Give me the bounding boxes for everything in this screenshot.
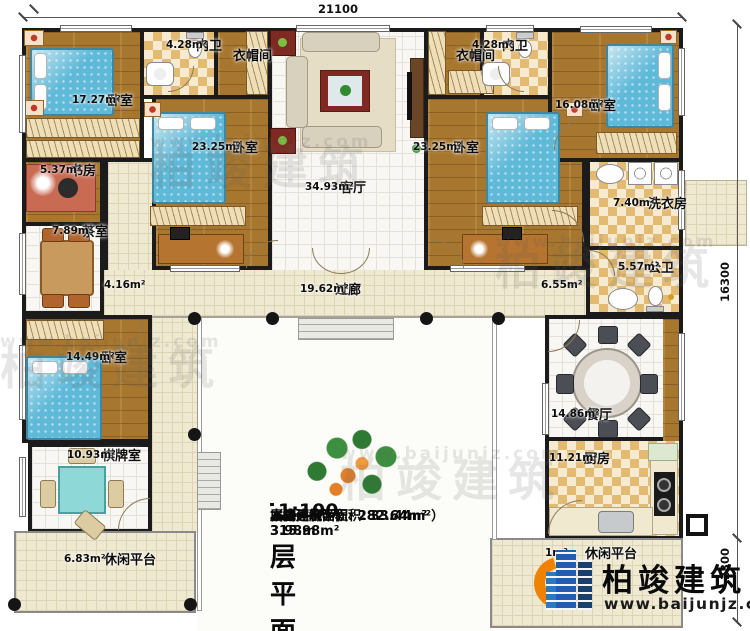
window — [170, 265, 240, 272]
courtyard-rail — [492, 318, 497, 540]
toilet — [648, 286, 663, 306]
tv-cabinet — [410, 58, 424, 138]
sink — [608, 288, 638, 310]
company-logo: 柏竣建筑 www.baijunjz.com — [530, 545, 750, 629]
pillow — [524, 117, 550, 130]
sink — [596, 164, 624, 184]
plant-icon — [278, 136, 287, 145]
logo-company-name: 柏竣建筑 — [602, 555, 746, 600]
wardrobe-hatch — [26, 320, 104, 340]
wardrobe-hatch — [150, 206, 246, 226]
tv-icon — [407, 72, 412, 120]
nightstand — [660, 30, 677, 44]
pillow — [658, 52, 671, 79]
monitor-icon — [170, 227, 190, 240]
wardrobe-hatch — [26, 140, 140, 158]
column — [8, 598, 21, 611]
toilet — [516, 32, 534, 39]
floor-drain-icon — [668, 294, 674, 300]
column — [492, 312, 505, 325]
column — [420, 312, 433, 325]
washing-machine — [654, 162, 678, 185]
nightstand — [144, 102, 161, 117]
logo-building-icon — [578, 560, 592, 610]
sofa — [286, 56, 308, 128]
toilet — [186, 32, 204, 39]
chair — [42, 294, 64, 308]
steps — [197, 452, 221, 510]
pillow — [34, 53, 47, 79]
chair — [598, 326, 618, 344]
pillar-box — [686, 514, 708, 536]
dimension-height-upper: 16300 — [718, 262, 732, 302]
logo-building-icon — [556, 550, 576, 610]
fridge — [648, 443, 678, 461]
burner-icon — [657, 498, 671, 512]
window — [678, 333, 685, 421]
column — [188, 312, 201, 325]
desk-lamp-icon — [470, 240, 488, 258]
logo-building-icon — [546, 572, 556, 610]
column — [188, 428, 201, 441]
window — [19, 457, 26, 517]
column — [266, 312, 279, 325]
platform-left — [14, 531, 196, 613]
chair — [40, 480, 56, 508]
window — [19, 55, 26, 133]
plant-icon — [278, 38, 287, 47]
window — [678, 48, 685, 116]
window — [296, 25, 390, 32]
sofa — [302, 32, 380, 52]
pillow — [190, 117, 216, 130]
plant-decoration — [302, 424, 402, 510]
chess-table — [58, 466, 106, 514]
logo-company-url: www.baijunjz.com — [604, 595, 750, 613]
dimension-width: 21100 — [318, 2, 358, 16]
plant-icon — [340, 85, 351, 96]
window — [19, 345, 26, 420]
chair — [556, 374, 574, 394]
chair — [108, 480, 124, 508]
dining-table-top — [584, 360, 630, 406]
column — [184, 598, 197, 611]
toilet — [646, 306, 664, 312]
pillow — [158, 117, 184, 130]
pillow — [32, 361, 58, 374]
burner-icon — [657, 478, 671, 492]
chair — [640, 374, 658, 394]
dimension-line-right — [737, 24, 738, 624]
sofa — [302, 126, 382, 148]
dimension-tick — [29, 4, 39, 14]
window — [542, 383, 549, 435]
nightstand — [24, 100, 44, 116]
chair — [68, 294, 90, 308]
desk-chair — [58, 178, 78, 198]
desk-lamp-icon — [216, 240, 234, 258]
window — [60, 25, 132, 32]
kitchen-sink — [598, 511, 634, 533]
monitor-icon — [502, 227, 522, 240]
window — [19, 233, 26, 295]
floor-plan: 卧室17.27m² 书房5.37m² 茶室7.89m² 内卫4.28m² 衣帽间… — [0, 0, 750, 631]
nightstand — [24, 30, 44, 46]
washing-machine — [628, 162, 652, 185]
tea-table — [40, 240, 94, 296]
dimension-line-top — [22, 17, 683, 18]
dining-porch-strip — [663, 319, 679, 441]
walkway-left — [152, 318, 197, 533]
pillow — [658, 84, 671, 111]
wardrobe-hatch — [428, 31, 446, 95]
wardrobe-hatch — [26, 118, 140, 138]
stat-height: 层高: 3.98m — [270, 505, 316, 539]
window — [486, 25, 534, 32]
window — [580, 26, 652, 33]
pillow — [492, 117, 518, 130]
wardrobe-hatch — [596, 132, 677, 154]
steps — [298, 318, 394, 340]
hall-left-strip — [104, 158, 156, 274]
